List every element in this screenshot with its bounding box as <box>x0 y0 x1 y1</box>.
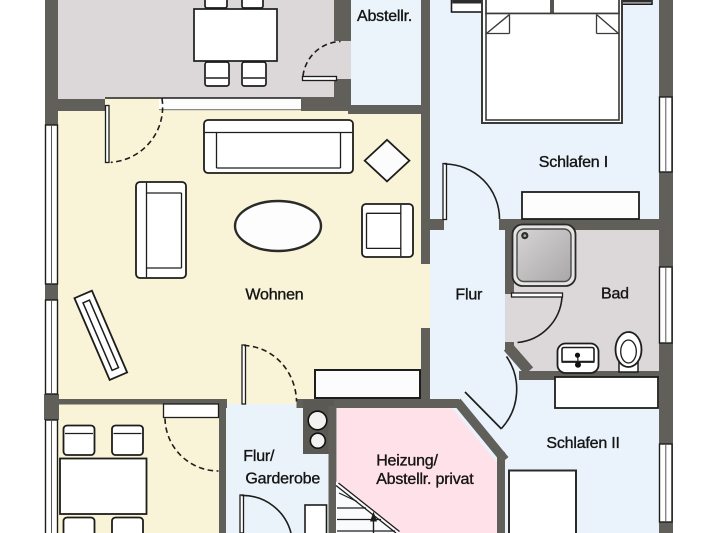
svg-text:Bad: Bad <box>601 286 629 303</box>
svg-text:Flur/: Flur/ <box>243 448 275 465</box>
svg-text:Flur: Flur <box>455 287 483 304</box>
svg-text:Wohnen: Wohnen <box>245 287 303 304</box>
svg-text:Schlafen I: Schlafen I <box>539 154 608 171</box>
svg-text:Schlafen II: Schlafen II <box>546 435 619 452</box>
svg-text:Garderobe: Garderobe <box>245 471 320 488</box>
svg-text:Abstellr. privat: Abstellr. privat <box>376 471 474 488</box>
svg-text:Abstellr.: Abstellr. <box>357 8 412 25</box>
svg-text:Heizung/: Heizung/ <box>376 453 438 470</box>
